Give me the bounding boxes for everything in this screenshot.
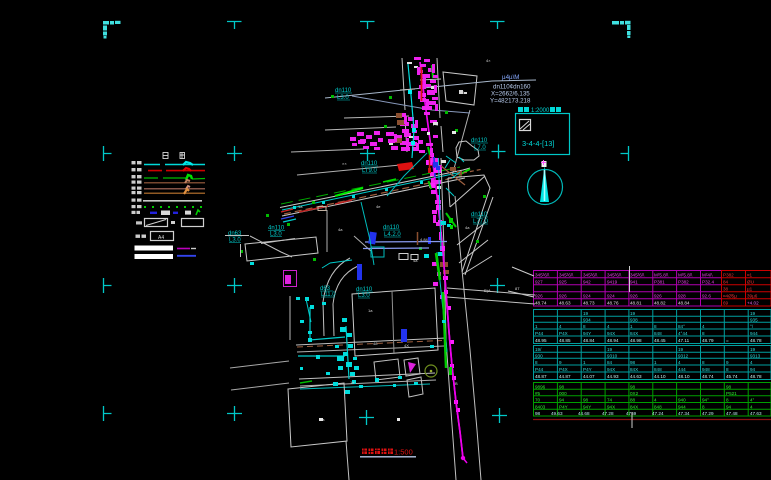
svg-text:48.10: 48.10	[678, 374, 690, 379]
svg-text:19: 19	[630, 311, 636, 316]
svg-text:P4X: P4X	[559, 331, 568, 336]
svg-text:88: 88	[630, 398, 636, 403]
svg-text:=: =	[726, 338, 729, 343]
svg-text:8: 8	[702, 404, 705, 409]
svg-text:1: 1	[583, 360, 586, 365]
svg-text:98: 98	[630, 384, 636, 389]
svg-text:19: 19	[678, 347, 684, 352]
svg-text:19: 19	[607, 347, 613, 352]
svg-text:1a: 1a	[298, 204, 303, 209]
svg-text:44.93: 44.93	[607, 374, 619, 379]
svg-text:49.63: 49.63	[551, 411, 563, 416]
svg-text:69: 69	[723, 300, 729, 305]
svg-text:1: 1	[654, 360, 657, 365]
svg-text:4a: 4a	[465, 225, 470, 230]
svg-text:4: 4	[750, 404, 753, 409]
svg-text:944: 944	[678, 404, 686, 409]
svg-text:µ1: µ1	[747, 287, 753, 292]
svg-text:48.74: 48.74	[702, 374, 714, 379]
svg-text:4X: 4X	[404, 343, 409, 348]
svg-text:8: 8	[726, 398, 729, 403]
svg-text:1e: 1e	[350, 380, 355, 385]
svg-text:84X: 84X	[630, 367, 638, 372]
svg-text:926: 926	[654, 294, 662, 299]
svg-text:4°: 4°	[750, 398, 755, 403]
svg-text:48.45: 48.45	[654, 338, 666, 343]
svg-text:444: 444	[678, 367, 686, 372]
svg-text:848: 848	[654, 331, 662, 336]
svg-text:P382: P382	[678, 280, 689, 285]
svg-text:4a: 4a	[462, 90, 467, 95]
svg-text:94: 94	[559, 398, 565, 403]
svg-text:44.07: 44.07	[583, 374, 595, 379]
svg-text:345²6/\: 345²6/\	[583, 273, 598, 278]
svg-text:48.95: 48.95	[535, 338, 547, 343]
svg-text:84°: 84°	[678, 324, 685, 329]
svg-text:B: B	[455, 381, 458, 386]
svg-text:44.10: 44.10	[654, 374, 666, 379]
svg-text:98: 98	[535, 411, 541, 416]
svg-text:98: 98	[559, 384, 565, 389]
svg-text:942: 942	[583, 280, 591, 285]
svg-text:9419: 9419	[607, 280, 618, 285]
svg-text:4: 4	[678, 360, 681, 365]
svg-text:98: 98	[630, 360, 636, 365]
svg-text:70: 70	[535, 398, 541, 403]
svg-text:935: 935	[750, 317, 758, 322]
svg-text:84X: 84X	[630, 331, 638, 336]
svg-text:47.34: 47.34	[678, 411, 690, 416]
svg-text:345²6/\: 345²6/\	[559, 273, 574, 278]
svg-text:345²6/\: 345²6/\	[630, 273, 645, 278]
svg-text:µ4µ\M: µ4µ\M	[502, 74, 519, 81]
svg-text:3-4-4-[13]: 3-4-4-[13]	[522, 139, 555, 148]
svg-text:4: 4	[750, 360, 753, 365]
svg-text:48.82: 48.82	[654, 300, 666, 305]
svg-text:47.63: 47.63	[750, 411, 762, 416]
svg-text:P4Y: P4Y	[583, 367, 592, 372]
svg-text:1: 1	[535, 324, 538, 329]
svg-text:48: 48	[373, 341, 378, 346]
svg-text:84: 84	[723, 280, 729, 285]
svg-text:8: 8	[583, 324, 586, 329]
svg-text:48.84: 48.84	[583, 338, 595, 343]
svg-text:938: 938	[630, 317, 638, 322]
svg-text:¤1: ¤1	[747, 273, 753, 278]
svg-text:48.81: 48.81	[630, 300, 642, 305]
svg-text:94: 94	[726, 404, 732, 409]
svg-text:4°44: 4°44	[678, 331, 688, 336]
svg-text:928: 928	[678, 294, 686, 299]
svg-text:48.87: 48.87	[535, 374, 547, 379]
svg-text:48.73: 48.73	[583, 300, 595, 305]
svg-text:39µ6: 39µ6	[747, 294, 758, 299]
svg-text:92.6: 92.6	[702, 294, 711, 299]
svg-text:48.98: 48.98	[630, 338, 642, 343]
svg-text:4: 4	[654, 398, 657, 403]
svg-text:4759: 4759	[626, 411, 637, 416]
svg-text:M²4/\: M²4/\	[702, 273, 713, 278]
svg-text:345²6/\: 345²6/\	[535, 273, 550, 278]
svg-text:45.74: 45.74	[726, 374, 738, 379]
svg-text:940: 940	[678, 398, 686, 403]
svg-text:P32.4: P32.4	[702, 280, 714, 285]
svg-text:8: 8	[702, 331, 705, 336]
svg-text:19: 19	[750, 311, 756, 316]
svg-text:8: 8	[654, 324, 657, 329]
svg-text:P44: P44	[535, 331, 544, 336]
svg-text:9313: 9313	[750, 353, 761, 358]
svg-text:1:500: 1:500	[394, 448, 413, 457]
svg-text:9: 9	[559, 360, 562, 365]
svg-text:47.24: 47.24	[652, 411, 664, 416]
svg-text:927: 927	[535, 280, 543, 285]
svg-text:¤4Ø5µ: ¤4Ø5µ	[723, 294, 737, 299]
svg-text:9: 9	[726, 360, 729, 365]
svg-text:38: 38	[723, 287, 729, 292]
svg-text:P44: P44	[535, 367, 544, 372]
svg-text:dn110¢dn160: dn110¢dn160	[493, 84, 531, 91]
svg-text:48.78: 48.78	[750, 338, 762, 343]
svg-text:X=2662/6.135: X=2662/6.135	[491, 91, 530, 98]
svg-text:345²6/\: 345²6/\	[607, 273, 622, 278]
svg-text:84X: 84X	[630, 404, 638, 409]
svg-text:4: 4	[559, 324, 562, 329]
svg-text:47.29: 47.29	[702, 411, 714, 416]
svg-text:4a: 4a	[413, 258, 418, 263]
svg-text:1a: 1a	[368, 308, 373, 313]
svg-text:000: 000	[559, 391, 567, 396]
svg-text:44.68: 44.68	[578, 411, 590, 416]
svg-text:48.74: 48.74	[535, 300, 547, 305]
svg-text:44.63: 44.63	[630, 374, 642, 379]
svg-text:48.94: 48.94	[607, 338, 619, 343]
svg-text:4e: 4e	[376, 204, 381, 209]
svg-text:Y=482173.218: Y=482173.218	[490, 98, 531, 105]
svg-text:47.11: 47.11	[678, 338, 690, 343]
svg-text:9310: 9310	[607, 353, 618, 358]
svg-text:98: 98	[583, 398, 589, 403]
svg-text:8: 8	[726, 367, 729, 372]
svg-text:+4.02: +4.02	[747, 300, 759, 305]
svg-text:19: 19	[583, 311, 589, 316]
svg-text:M²5.8/\: M²5.8/\	[654, 273, 669, 278]
svg-text:B)A: B)A	[484, 288, 491, 293]
svg-text:P521: P521	[726, 391, 737, 396]
svg-text:47.48: 47.48	[726, 411, 738, 416]
svg-text:94X: 94X	[607, 404, 615, 409]
svg-text:94X: 94X	[607, 331, 615, 336]
svg-text:47.28: 47.28	[602, 411, 614, 416]
svg-text:A4: A4	[158, 235, 164, 241]
svg-text:4: 4	[702, 324, 705, 329]
svg-text:48.76: 48.76	[607, 300, 619, 305]
svg-text:848: 848	[654, 367, 662, 372]
svg-text:94X: 94X	[607, 367, 615, 372]
svg-text:926: 926	[630, 294, 638, 299]
svg-text:9312: 9312	[678, 353, 689, 358]
svg-text:926: 926	[559, 294, 567, 299]
svg-text:48.85: 48.85	[559, 338, 571, 343]
svg-text:4×: 4×	[486, 58, 491, 63]
svg-text:19: 19	[750, 347, 756, 352]
svg-text:44.87: 44.87	[559, 374, 571, 379]
svg-text:948: 948	[702, 367, 710, 372]
svg-text:925: 925	[559, 280, 567, 285]
svg-text:48.63: 48.63	[559, 300, 571, 305]
svg-text:8403: 8403	[535, 404, 546, 409]
svg-text:4.84: 4.84	[420, 237, 429, 242]
svg-text:48.84: 48.84	[678, 300, 690, 305]
svg-text:ØU: ØU	[747, 280, 754, 285]
svg-text:P4X: P4X	[559, 367, 568, 372]
svg-text:94°: 94°	[702, 398, 709, 403]
svg-text:48.78: 48.78	[750, 374, 762, 379]
svg-text:930: 930	[535, 353, 543, 358]
svg-text:98: 98	[726, 384, 732, 389]
svg-text:8: 8	[702, 360, 705, 365]
svg-text:84: 84	[607, 360, 613, 365]
svg-text:××: ××	[342, 161, 347, 166]
svg-text:8T: 8T	[515, 286, 520, 291]
svg-text:8: 8	[535, 360, 538, 365]
svg-text:941: 941	[630, 280, 638, 285]
svg-text:74: 74	[607, 398, 613, 403]
svg-text:94Y: 94Y	[583, 331, 591, 336]
svg-text:P4Y: P4Y	[559, 404, 568, 409]
svg-text:P382: P382	[723, 273, 734, 278]
svg-text:1: 1	[630, 324, 633, 329]
svg-text:848: 848	[654, 404, 662, 409]
svg-text:P381: P381	[654, 280, 665, 285]
svg-text:48.79: 48.79	[702, 338, 714, 343]
svg-text:944: 944	[750, 331, 758, 336]
svg-text:4a: 4a	[338, 227, 343, 232]
svg-text:94Y: 94Y	[583, 404, 591, 409]
svg-text:0X2: 0X2	[630, 391, 639, 396]
svg-text:4: 4	[607, 324, 610, 329]
svg-text:926: 926	[535, 294, 543, 299]
svg-text:94: 94	[750, 367, 756, 372]
svg-text:#5: #5	[535, 391, 541, 396]
svg-text:924: 924	[607, 294, 615, 299]
svg-text:924: 924	[583, 294, 591, 299]
svg-text:9896: 9896	[535, 384, 546, 389]
svg-text:M²5.8/\: M²5.8/\	[678, 273, 693, 278]
svg-text:19/: 19/	[535, 347, 542, 352]
svg-text:934: 934	[583, 317, 591, 322]
